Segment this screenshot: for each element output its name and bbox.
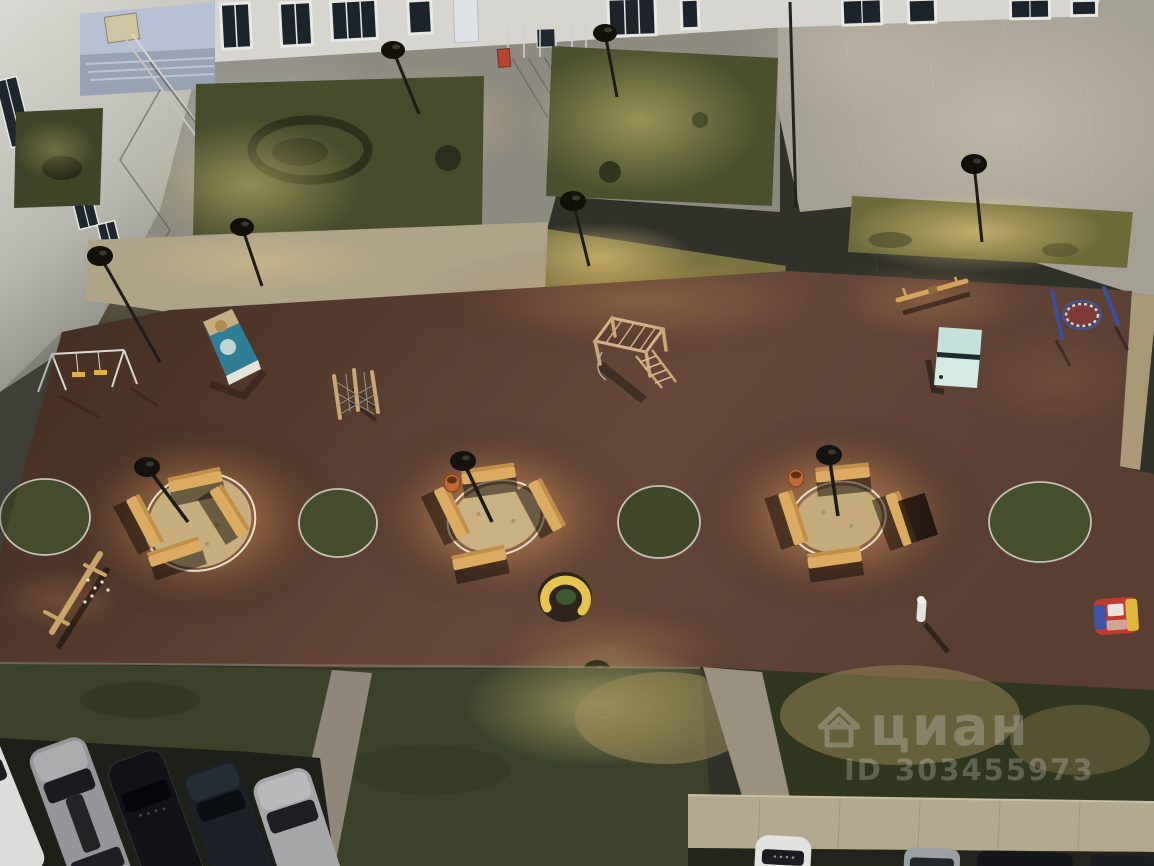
lawn-center — [520, 45, 778, 206]
grass-circle-4 — [989, 482, 1091, 562]
parked-car — [753, 835, 812, 866]
cian-house-icon — [818, 705, 860, 749]
parked-car — [903, 847, 961, 866]
trash-box — [497, 49, 511, 68]
watermark-brand-row: циан — [818, 700, 1095, 754]
watermark-brand-text: циан — [870, 700, 1030, 754]
cian-watermark: циан ID 303455973 — [818, 700, 1095, 785]
grass-circle-2 — [299, 489, 377, 557]
trash-bin — [444, 474, 460, 492]
night-courtyard-photo: циан ID 303455973 — [0, 0, 1154, 866]
carousel-spinner — [538, 572, 592, 622]
lawn-small-left — [14, 108, 103, 208]
trash-bin — [788, 469, 804, 487]
watermark-listing-id: ID 303455973 — [844, 756, 1095, 785]
entrance-recess — [80, 2, 215, 96]
bench — [815, 462, 872, 496]
toy-car — [1093, 596, 1139, 635]
grass-circle-3 — [618, 486, 700, 558]
